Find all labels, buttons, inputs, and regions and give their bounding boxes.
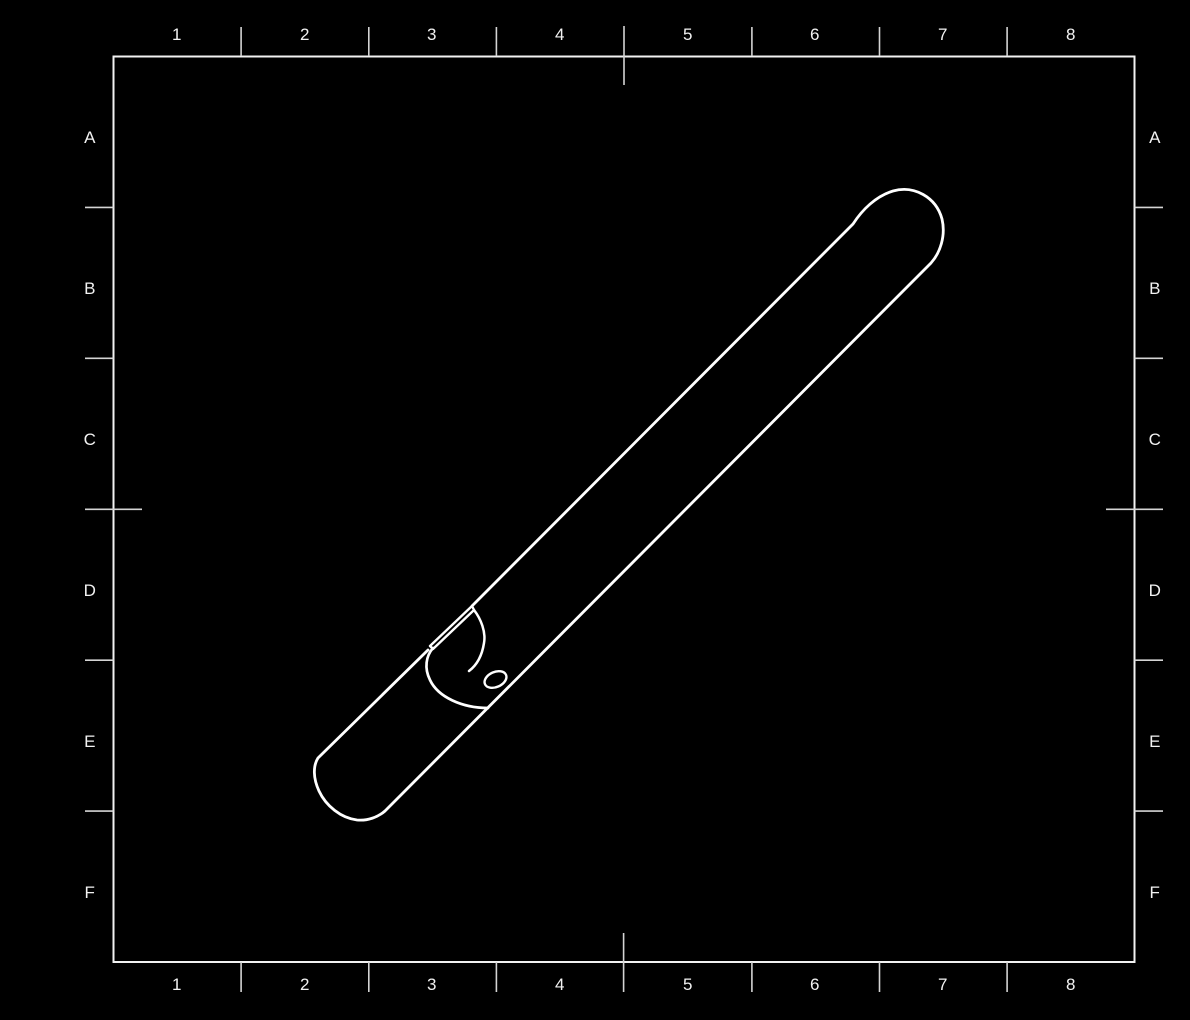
zone-label-right-d: D (1135, 580, 1175, 602)
part-notch-wall-rim (469, 610, 484, 671)
zone-label-top-4: 4 (540, 24, 580, 46)
zone-label-bottom-6: 6 (795, 974, 835, 996)
zone-label-bottom-2: 2 (285, 974, 325, 996)
zone-label-right-c: C (1135, 429, 1175, 451)
zone-label-top-1: 1 (157, 24, 197, 46)
zone-label-right-f: F (1135, 882, 1175, 904)
part-hole (482, 668, 509, 691)
zone-label-top-5: 5 (668, 24, 708, 46)
drawing-frame-border (114, 57, 1135, 963)
zone-label-top-7: 7 (923, 24, 963, 46)
zone-label-top-8: 8 (1051, 24, 1091, 46)
zone-label-left-f: F (70, 882, 110, 904)
zone-label-bottom-8: 8 (1051, 974, 1091, 996)
zone-label-top-2: 2 (285, 24, 325, 46)
zone-label-left-d: D (70, 580, 110, 602)
zone-label-right-b: B (1135, 278, 1175, 300)
zone-label-left-c: C (70, 429, 110, 451)
zone-label-left-e: E (70, 731, 110, 753)
zone-label-bottom-4: 4 (540, 974, 580, 996)
zone-label-bottom-7: 7 (923, 974, 963, 996)
zone-label-bottom-3: 3 (412, 974, 452, 996)
part-view (314, 189, 943, 820)
zone-label-bottom-5: 5 (668, 974, 708, 996)
zone-label-right-a: A (1135, 127, 1175, 149)
part-notch-sliver-face (430, 606, 474, 649)
drawing-sheet: 1 2 3 4 5 6 7 8 1 2 3 4 5 6 7 8 A B C D … (0, 0, 1190, 1020)
zone-label-right-e: E (1135, 731, 1175, 753)
part-outline (314, 189, 943, 820)
zone-label-top-6: 6 (795, 24, 835, 46)
zone-label-top-3: 3 (412, 24, 452, 46)
zone-label-bottom-1: 1 (157, 974, 197, 996)
zone-label-left-a: A (70, 127, 110, 149)
drawing-canvas (0, 0, 1190, 1020)
zone-label-left-b: B (70, 278, 110, 300)
